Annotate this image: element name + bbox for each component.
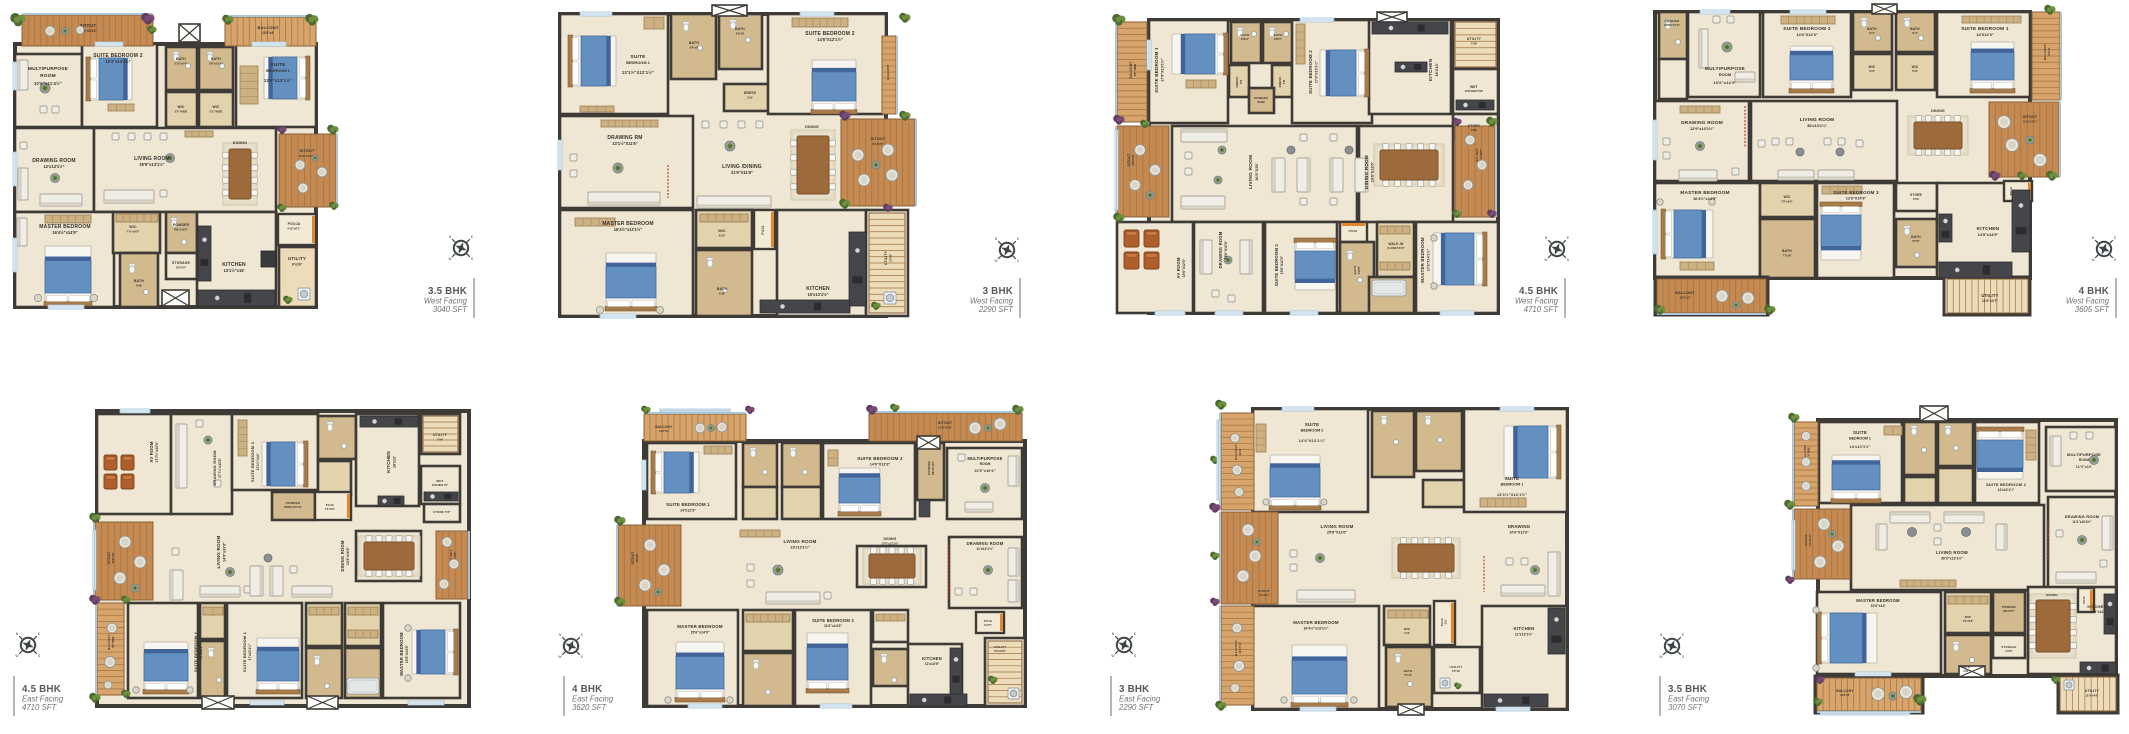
svg-text:WIC: WIC [1869, 65, 1876, 69]
svg-text:13'1½"X11'6": 13'1½"X11'6" [612, 141, 637, 146]
svg-text:10'6"x12'9": 10'6"x12'9" [1713, 80, 1736, 85]
svg-text:17'6"x13'1½": 17'6"x13'1½" [881, 541, 899, 545]
svg-text:6'x8': 6'x8' [1964, 671, 1969, 673]
svg-text:DRAWING ROOM: DRAWING ROOM [1218, 231, 1223, 268]
svg-text:10'6"X11'6": 10'6"X11'6" [1509, 530, 1529, 534]
svg-text:SITOUT: SITOUT [1127, 154, 1131, 167]
svg-text:UTILITY: UTILITY [1981, 293, 1998, 298]
svg-text:7'3"x8': 7'3"x8' [1783, 253, 1792, 257]
svg-text:POWDER: POWDER [1665, 19, 1680, 23]
svg-text:6'x4'5": 6'x4'5" [984, 624, 992, 627]
svg-text:16'4½"x14'9": 16'4½"x14'9" [52, 230, 77, 235]
svg-text:BEDROOM 2: BEDROOM 2 [1301, 429, 1324, 433]
svg-text:ROOM: ROOM [40, 73, 56, 79]
svg-text:CLOSET 8'X7': CLOSET 8'X7' [1387, 246, 1405, 250]
svg-text:WET: WET [436, 479, 443, 483]
svg-text:15'x13'1½": 15'x13'1½" [808, 292, 829, 297]
svg-text:6'x5': 6'x5' [1912, 69, 1918, 73]
svg-text:UTILITY: UTILITY [1467, 37, 1482, 41]
svg-text:8'X5'9": 8'X5'9" [1241, 38, 1249, 41]
svg-text:5'6"x8': 5'6"x8' [1404, 674, 1412, 677]
svg-text:3.5 BHK: 3.5 BHK [428, 286, 467, 297]
svg-text:17'6"X14'1½": 17'6"X14'1½" [1426, 248, 1430, 271]
svg-text:14'x13'1½": 14'x13'1½" [1850, 445, 1871, 449]
svg-text:SUITE BEDROOM 3: SUITE BEDROOM 3 [250, 441, 255, 482]
svg-text:KITCHEN: KITCHEN [922, 656, 942, 661]
svg-text:POWDER: POWDER [2002, 605, 2016, 609]
svg-text:MULTIPURPOSE: MULTIPURPOSE [2067, 452, 2101, 457]
svg-text:12'x4': 12'x4' [1239, 448, 1242, 455]
svg-text:POWDER: POWDER [286, 501, 301, 505]
svg-text:17'7"X6'5": 17'7"X6'5" [1480, 149, 1483, 161]
svg-text:POOJA: POOJA [288, 222, 301, 226]
svg-text:KITCHEN: KITCHEN [2087, 604, 2106, 609]
svg-text:5'6"x8': 5'6"x8' [690, 45, 699, 49]
svg-text:3620 SFT: 3620 SFT [572, 703, 607, 712]
svg-text:KITCHEN 7'X8': KITCHEN 7'X8' [1465, 89, 1484, 93]
svg-text:7'6"x6'6": 7'6"x6'6" [1781, 199, 1793, 203]
svg-text:11'x14'9": 11'x14'9" [925, 662, 940, 666]
svg-text:PUJA: PUJA [2083, 596, 2086, 603]
svg-text:3 BHK: 3 BHK [1119, 684, 1149, 695]
svg-text:POWDER: POWDER [927, 461, 931, 475]
svg-text:DRAWING ROOM: DRAWING ROOM [212, 450, 217, 486]
svg-text:5'9"x10'9": 5'9"x10'9" [994, 650, 1006, 653]
svg-text:17'7½"x12'6": 17'7½"x12'6" [155, 441, 159, 463]
svg-text:6'x10': 6'x10' [292, 262, 302, 266]
svg-text:BALCONY: BALCONY [1234, 444, 1238, 460]
svg-text:DINING: DINING [2046, 593, 2058, 597]
svg-text:DINING: DINING [1931, 109, 1945, 113]
svg-text:BALCONY: BALCONY [1234, 640, 1238, 656]
svg-text:2290 SFT: 2290 SFT [1118, 703, 1154, 712]
svg-text:BALCONY: BALCONY [1675, 291, 1695, 295]
svg-text:17'6"X13'1½": 17'6"X13'1½" [1161, 58, 1165, 82]
svg-text:2290 SFT: 2290 SFT [978, 305, 1014, 314]
svg-text:11'9"X4': 11'9"X4' [659, 429, 669, 433]
svg-text:5'X8': 5'X8' [1471, 128, 1477, 132]
svg-text:BALCONY: BALCONY [2043, 44, 2047, 60]
svg-text:UTILITY: UTILITY [994, 645, 1007, 649]
svg-text:5'6'9': 5'6'9' [1913, 197, 1920, 201]
svg-text:11'x13'1½": 11'x13'1½" [976, 547, 994, 551]
svg-text:17'x13'1½": 17'x13'1½" [248, 643, 252, 660]
svg-text:7'x8': 7'x8' [437, 437, 443, 441]
svg-text:5'6" WIDE: 5'6" WIDE [112, 636, 115, 648]
svg-text:DRESS: DRESS [1278, 77, 1282, 88]
svg-text:BATH: BATH [1867, 27, 1877, 31]
svg-text:SUITE BEDROOM 1: SUITE BEDROOM 1 [666, 502, 710, 507]
svg-text:BATH: BATH [689, 41, 699, 45]
svg-text:STORE: STORE [1468, 124, 1480, 128]
svg-text:3'5" WIDE: 3'5" WIDE [175, 109, 188, 113]
svg-text:SITOUT: SITOUT [631, 552, 635, 565]
svg-text:UTILITY: UTILITY [1449, 665, 1463, 669]
svg-text:14'6"X12'3": 14'6"X12'3" [870, 463, 891, 467]
svg-text:ROOM: ROOM [980, 462, 991, 466]
svg-text:DINING: DINING [883, 537, 896, 541]
svg-text:36'x13'1¼": 36'x13'1¼" [1807, 123, 1827, 128]
svg-text:11'9"x4'7": 11'9"x4'7" [1982, 299, 1999, 303]
svg-text:14'6"X12'1¼": 14'6"X12'1¼" [1299, 438, 1326, 443]
svg-text:DINING: DINING [233, 141, 248, 145]
svg-text:29'9"x13'1½": 29'9"x13'1½" [139, 162, 164, 167]
svg-text:4'6"x6'6": 4'6"x6'6" [325, 508, 335, 511]
svg-text:WIC: WIC [212, 105, 219, 109]
svg-text:13'1½"x4': 13'1½"x4' [1238, 642, 1242, 653]
svg-text:4710 SFT: 4710 SFT [1524, 305, 1559, 314]
svg-text:RM 4'6"x6'6": RM 4'6"x6'6" [932, 461, 935, 475]
svg-text:15'6"x14': 15'6"x14' [1871, 604, 1886, 608]
svg-text:8'X5'5": 8'X5'5" [1274, 38, 1282, 41]
svg-text:15'6"x14'9": 15'6"x14'9" [405, 644, 409, 663]
svg-text:BEDROOM 1: BEDROOM 1 [626, 60, 651, 65]
svg-text:ROOM: ROOM [1257, 102, 1264, 104]
svg-text:MASTER BEDROOM: MASTER BEDROOM [677, 624, 723, 629]
svg-text:3.5 BHK: 3.5 BHK [1668, 684, 1707, 695]
svg-text:STORAGE: STORAGE [172, 261, 191, 265]
svg-text:SUITE BEDROOM 3: SUITE BEDROOM 3 [812, 618, 854, 623]
svg-text:SUITE BEDROOM 1: SUITE BEDROOM 1 [1154, 47, 1159, 93]
svg-text:6'x5': 6'x5' [1869, 69, 1875, 73]
svg-text:MASTER BEDROOM: MASTER BEDROOM [399, 632, 404, 676]
svg-text:DRESS: DRESS [744, 91, 757, 95]
svg-text:7'½"x6'3": 7'½"x6'3" [126, 230, 140, 234]
svg-text:SITOUT: SITOUT [938, 421, 953, 425]
svg-text:5'10"x6'1": 5'10"x6'1" [287, 226, 301, 230]
svg-text:MULTIPURPOSE: MULTIPURPOSE [28, 66, 69, 72]
svg-text:11'x13'1½": 11'x13'1½" [1515, 632, 1533, 636]
svg-text:MASTER BEDROOM: MASTER BEDROOM [1856, 598, 1900, 603]
svg-text:17'7½"x12'6": 17'7½"x12'6" [218, 458, 222, 479]
svg-text:20'9"x14': 20'9"x14' [2090, 610, 2104, 614]
svg-text:DINING ROOM: DINING ROOM [340, 540, 345, 571]
svg-text:BALCONY: BALCONY [257, 25, 278, 30]
svg-text:14'9"x33'6": 14'9"x33'6" [223, 542, 227, 562]
svg-text:14'9"x10': 14'9"x10' [111, 552, 115, 564]
svg-text:14'5"x14'9": 14'5"x14'9" [1978, 232, 1999, 237]
svg-text:7'X8': 7'X8' [1471, 41, 1478, 45]
svg-text:BATH: BATH [1910, 27, 1920, 31]
svg-text:RM 5'x6'3": RM 5'x6'3" [2003, 611, 2014, 613]
svg-text:SUITE: SUITE [1305, 422, 1320, 427]
svg-text:WET: WET [1470, 85, 1478, 89]
svg-text:STORE: STORE [1910, 193, 1922, 197]
svg-text:DRAWING ROOM: DRAWING ROOM [967, 541, 1004, 546]
svg-text:LIVING ROOM: LIVING ROOM [1320, 524, 1353, 529]
svg-text:SUITE BEDROOM 2: SUITE BEDROOM 2 [193, 631, 198, 672]
svg-text:15'6"x14'9": 15'6"x14'9" [690, 630, 709, 634]
svg-text:STORAGE: STORAGE [2001, 645, 2016, 649]
svg-text:6'x8': 6'x8' [136, 283, 142, 287]
svg-text:13'X5': 13'X5' [888, 254, 892, 262]
svg-text:3 BHK: 3 BHK [983, 286, 1013, 297]
svg-text:16'3"x5': 16'3"x5' [1680, 296, 1691, 300]
svg-text:14'X12'3": 14'X12'3" [1976, 32, 1993, 37]
svg-text:5'8"x5'1½": 5'8"x5'1½" [209, 61, 223, 65]
svg-text:POWDER: POWDER [173, 223, 190, 227]
svg-text:30'3"x13'1½": 30'3"x13'1½" [1941, 556, 1963, 560]
svg-text:STORE 5'8": STORE 5'8" [433, 510, 451, 514]
svg-text:12'x13'1½": 12'x13'1½" [44, 164, 65, 169]
svg-text:BALCONY: BALCONY [1836, 689, 1854, 693]
svg-text:21'6"X11'6": 21'6"X11'6" [731, 170, 753, 175]
svg-text:13'1½"X12'1½": 13'1½"X12'1½" [1497, 492, 1527, 497]
svg-text:16'4½"x14'9": 16'4½"x14'9" [1693, 196, 1717, 201]
svg-text:SUITE BEDROOM 2: SUITE BEDROOM 2 [857, 456, 903, 461]
svg-text:10'x11'6": 10'x11'6" [1259, 594, 1269, 597]
svg-text:18'X13': 18'X13' [1434, 63, 1439, 76]
svg-text:KITCHEN: KITCHEN [1514, 626, 1535, 631]
svg-text:15'6"X12'6": 15'6"X12'6" [1280, 255, 1284, 274]
svg-text:SUITE BEDROOM 1: SUITE BEDROOM 1 [242, 631, 247, 672]
svg-text:13'1½"x15': 13'1½"x15' [224, 268, 245, 273]
svg-text:16'6"X35': 16'6"X35' [1254, 163, 1259, 180]
svg-text:BALCONY: BALCONY [655, 425, 673, 429]
svg-text:BEDROOM 1: BEDROOM 1 [266, 68, 291, 73]
svg-text:12'3"x13'1½": 12'3"x13'1½" [105, 59, 130, 64]
svg-text:SITOUT: SITOUT [2023, 115, 2038, 119]
svg-text:BATH: BATH [176, 57, 186, 61]
svg-text:10' WIDE: 10' WIDE [1809, 447, 1811, 457]
svg-text:14'6"X13'6": 14'6"X13'6" [1371, 162, 1375, 183]
svg-text:BALCONY: BALCONY [886, 64, 890, 79]
svg-text:SUITE: SUITE [1505, 476, 1520, 481]
svg-text:ROOM 4'3"x7': ROOM 4'3"x7' [1664, 24, 1681, 27]
svg-text:BATH: BATH [735, 27, 745, 31]
svg-text:SITOUT: SITOUT [1258, 589, 1270, 593]
svg-text:WIC: WIC [1912, 65, 1919, 69]
svg-text:5'3" WIDE: 5'3" WIDE [210, 109, 223, 113]
svg-text:5'x5': 5'x5' [1404, 632, 1410, 635]
svg-text:BATH: BATH [1241, 33, 1250, 37]
svg-text:SUITE BEDROOM 2: SUITE BEDROOM 2 [1986, 482, 2027, 487]
svg-text:PUJA: PUJA [2009, 187, 2013, 195]
svg-text:SUITE BEDROOM 2: SUITE BEDROOM 2 [1308, 50, 1313, 94]
svg-text:15'6"X12'6": 15'6"X12'6" [1224, 240, 1228, 259]
svg-text:4710 SFT: 4710 SFT [22, 703, 57, 712]
svg-text:BATH: BATH [134, 279, 144, 283]
svg-text:WIC: WIC [177, 105, 184, 109]
svg-text:4.5 BHK: 4.5 BHK [1519, 286, 1558, 297]
svg-text:5'x5': 5'x5' [747, 95, 753, 99]
svg-text:AV ROOM: AV ROOM [1176, 257, 1181, 278]
svg-text:9'x11'6": 9'x11'6" [872, 142, 884, 146]
svg-text:BATH: BATH [1404, 669, 1413, 673]
svg-text:BEDROOM 1: BEDROOM 1 [1849, 436, 1871, 440]
svg-text:BATH: BATH [717, 287, 728, 291]
svg-text:11'3"x10': 11'3"x10' [2076, 465, 2092, 469]
svg-text:BATH: BATH [1911, 235, 1921, 239]
svg-text:SITOUT: SITOUT [870, 137, 886, 141]
svg-text:17'x12'9": 17'x12'9" [199, 645, 203, 659]
svg-text:11'9"x4'6": 11'9"x4'6" [2085, 693, 2099, 697]
svg-text:13'1½"X12'1½": 13'1½"X12'1½" [622, 70, 654, 75]
svg-text:MASTER BEDROOM: MASTER BEDROOM [1420, 237, 1425, 283]
svg-text:4.5 BHK: 4.5 BHK [22, 684, 61, 695]
svg-text:DRESS: DRESS [1235, 77, 1239, 88]
svg-text:11'9"x4': 11'9"x4' [2048, 47, 2051, 56]
svg-text:10'6"x11'4½": 10'6"x11'4½" [34, 81, 62, 86]
svg-text:6'x7': 6'x7' [1912, 31, 1918, 35]
svg-text:BEDROOM 1: BEDROOM 1 [1501, 483, 1524, 487]
svg-text:UTILITY: UTILITY [433, 433, 447, 437]
svg-text:6'X5'5": 6'X5'5" [1358, 266, 1361, 274]
svg-text:ROOM: ROOM [1719, 72, 1731, 77]
svg-text:6'x5': 6'x5' [719, 234, 726, 238]
svg-text:13'9"x4': 13'9"x4' [262, 31, 274, 35]
svg-text:BALCONY: BALCONY [1129, 61, 1133, 79]
svg-text:4 BHK: 4 BHK [572, 684, 602, 695]
svg-text:10'x13': 10'x13' [635, 553, 639, 562]
svg-text:PUJA: PUJA [761, 225, 765, 235]
svg-text:5'6"x8': 5'6"x8' [736, 31, 745, 35]
svg-text:14'9"x5': 14'9"x5' [1840, 693, 1850, 697]
svg-text:6'x8': 6'x8' [719, 292, 725, 296]
svg-text:LIVING ROOM: LIVING ROOM [216, 535, 221, 568]
svg-text:PUJA: PUJA [1349, 229, 1358, 233]
svg-text:15'9"x5'9": 15'9"x5'9" [938, 426, 953, 430]
svg-text:AV ROOM: AV ROOM [149, 441, 154, 462]
svg-text:BATH: BATH [1782, 249, 1792, 253]
svg-text:WIC: WIC [1404, 627, 1411, 631]
svg-text:12'6"X14'9": 12'6"X14'9" [1846, 197, 1867, 201]
svg-text:LIVING ROOM: LIVING ROOM [783, 539, 816, 544]
svg-text:5'x6'3": 5'x6'3" [2005, 651, 2012, 653]
svg-text:ROOM: ROOM [2079, 458, 2089, 462]
svg-text:3'x5': 3'x5' [1446, 619, 1448, 624]
svg-text:5'6"8": 5'6"8" [1912, 239, 1920, 243]
svg-text:PUJA: PUJA [1440, 618, 1444, 626]
svg-text:MULTIPURPOSE: MULTIPURPOSE [967, 456, 1002, 461]
svg-text:UTILITY: UTILITY [884, 250, 888, 265]
svg-text:11'3"x16'4½": 11'3"x16'4½" [2072, 520, 2092, 524]
svg-text:PUJA: PUJA [326, 503, 335, 507]
svg-text:14'X12'3": 14'X12'3" [680, 508, 696, 512]
svg-text:SUITE BEDROOM 3: SUITE BEDROOM 3 [1274, 244, 1279, 286]
svg-text:SITOUT: SITOUT [107, 552, 111, 565]
svg-text:12'9"x13'1½": 12'9"x13'1½" [1690, 126, 1714, 131]
svg-text:BALCONY: BALCONY [107, 634, 111, 650]
svg-text:25'6"X11'6": 25'6"X11'6" [1327, 531, 1347, 535]
svg-text:POWDER: POWDER [1254, 96, 1268, 100]
svg-text:BATH: BATH [211, 57, 221, 61]
svg-text:16'4½"x13'1½": 16'4½"x13'1½" [1303, 626, 1328, 630]
svg-text:5'6"5'9": 5'6"5'9" [176, 265, 187, 269]
svg-text:16'6"X10': 16'6"X10' [1131, 154, 1135, 166]
svg-text:12'x13'1½": 12'x13'1½" [1998, 488, 2015, 492]
svg-text:UTILITY: UTILITY [2085, 689, 2100, 693]
svg-text:13'9"x13'1½": 13'9"x13'1½" [264, 78, 292, 83]
svg-text:3040 SFT: 3040 SFT [433, 305, 468, 314]
svg-text:KITCHEN: KITCHEN [386, 451, 391, 473]
svg-text:WIC: WIC [1965, 615, 1972, 619]
svg-text:SITOUT: SITOUT [299, 149, 315, 153]
svg-text:BATH: BATH [1962, 665, 1970, 669]
svg-text:SITOUT: SITOUT [1804, 534, 1808, 546]
svg-text:BATH: BATH [1274, 33, 1283, 37]
svg-text:4 BHK: 4 BHK [2079, 286, 2109, 297]
svg-text:11'6"x14'9": 11'6"x14'9" [824, 624, 842, 628]
svg-text:WIC: WIC [1783, 195, 1790, 199]
svg-text:WIC: WIC [129, 225, 137, 229]
svg-text:23'x13'1½": 23'x13'1½" [790, 546, 809, 550]
svg-text:3605 SFT: 3605 SFT [2075, 305, 2110, 314]
svg-text:SIT OUT: SIT OUT [1475, 148, 1479, 161]
svg-text:3070 SFT: 3070 SFT [1668, 703, 1703, 712]
svg-text:SUITE BEDROOM 3: SUITE BEDROOM 3 [1833, 190, 1879, 195]
svg-text:16'4½"x13'1½": 16'4½"x13'1½" [614, 227, 643, 232]
svg-text:13'1½"x14': 13'1½"x14' [256, 453, 260, 470]
svg-text:DRAWING: DRAWING [1508, 524, 1531, 529]
svg-text:14'6"X12'3": 14'6"X12'3" [1796, 32, 1817, 37]
svg-text:14'9"x16'6": 14'9"x16'6" [346, 546, 350, 565]
svg-text:WALK-IN: WALK-IN [1388, 242, 1404, 246]
svg-text:10'6"x10'6": 10'6"x10'6" [974, 469, 995, 473]
svg-text:DINING: DINING [805, 125, 819, 129]
svg-text:MASTER BEDROOM: MASTER BEDROOM [1293, 620, 1339, 625]
svg-text:DINING ROOM: DINING ROOM [1364, 155, 1369, 189]
svg-text:5'10"x5'4": 5'10"x5'4" [175, 61, 189, 65]
svg-text:KITCHEN 7'8": KITCHEN 7'8" [432, 484, 448, 487]
svg-text:LIVING ROOM: LIVING ROOM [1936, 550, 1968, 555]
svg-text:17'6"X13'1½": 17'6"X13'1½" [1314, 60, 1318, 83]
svg-text:9'10"x4'1": 9'10"x4'1" [2023, 120, 2038, 124]
svg-text:7'6"x6'6": 7'6"x6'6" [1963, 620, 1974, 623]
svg-text:14'6"X12'1½": 14'6"X12'1½" [817, 37, 843, 42]
svg-text:15'6"X12'6": 15'6"X12'6" [1182, 258, 1186, 277]
svg-text:WIC: WIC [718, 229, 726, 233]
svg-text:5'6"x8': 5'6"x8' [1452, 670, 1460, 673]
svg-text:PUJA: PUJA [984, 619, 993, 623]
svg-text:DRAWING ROOM: DRAWING ROOM [2065, 514, 2099, 519]
svg-text:18'x12': 18'x12' [393, 456, 397, 468]
svg-text:5'9" WIDE: 5'9" WIDE [1133, 64, 1137, 77]
svg-text:RM 5'x6'5": RM 5'x6'5" [174, 227, 189, 231]
svg-text:6'x7': 6'x7' [1869, 31, 1875, 35]
svg-text:ROOM 4'6½"X4': ROOM 4'6½"X4' [284, 505, 302, 509]
svg-text:UTILITY: UTILITY [288, 256, 306, 261]
svg-text:BATH: BATH [1353, 266, 1357, 275]
svg-text:10'x11'1½": 10'x11'1½" [1808, 534, 1812, 546]
svg-text:SUITE: SUITE [1853, 430, 1867, 435]
